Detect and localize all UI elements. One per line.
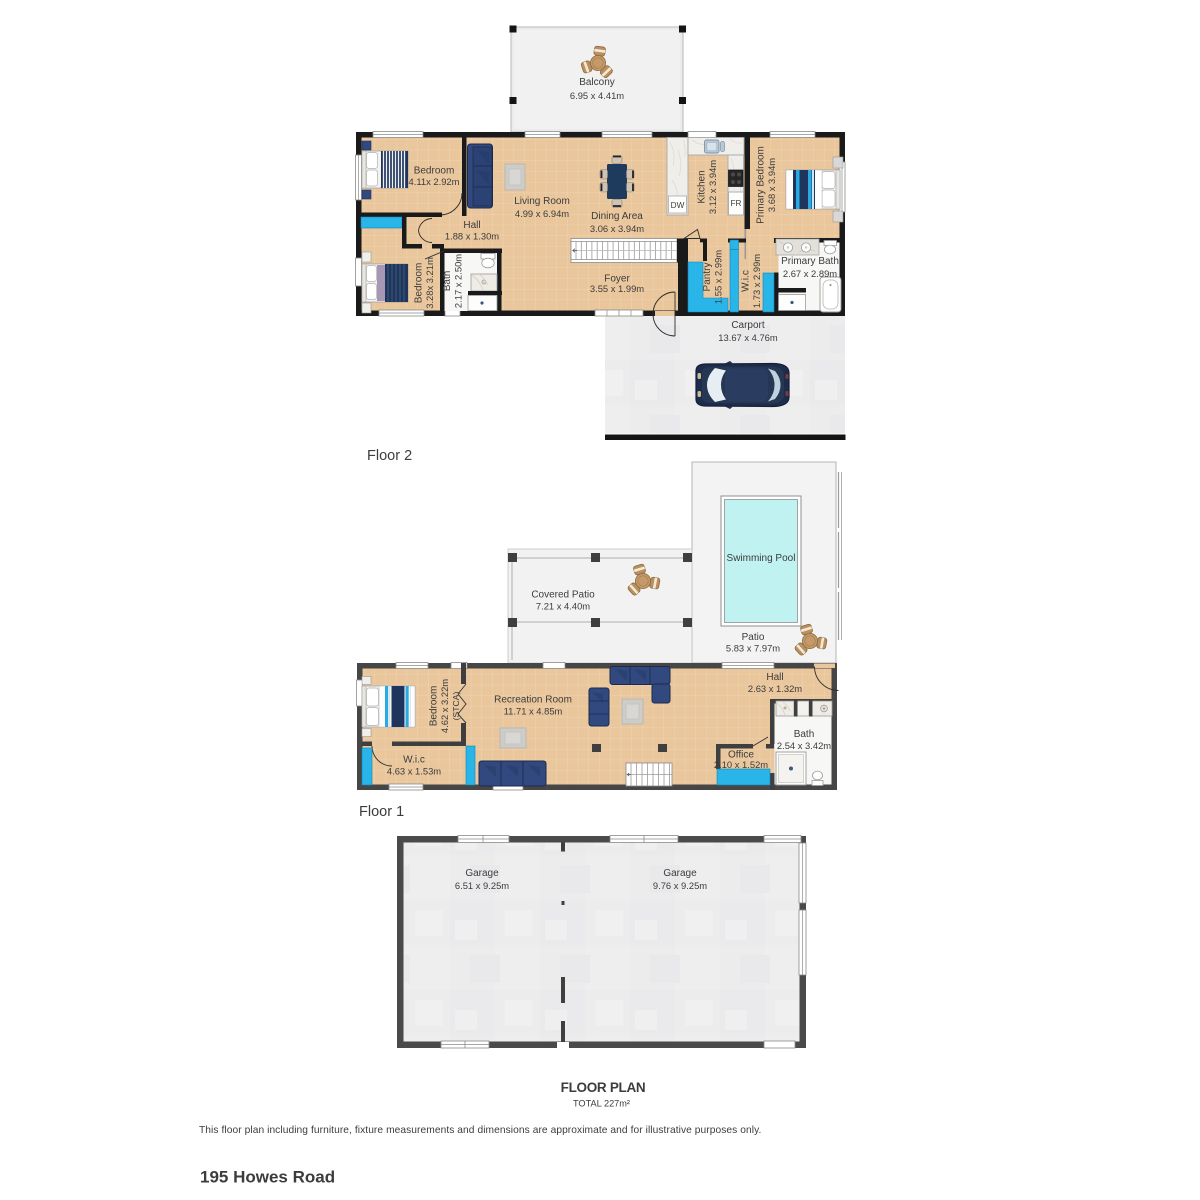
svg-text:Floor 2: Floor 2	[367, 448, 412, 464]
svg-text:Bedroom: Bedroom	[414, 166, 455, 177]
svg-text:3.06 x 3.94m: 3.06 x 3.94m	[590, 223, 644, 234]
svg-text:3.68 x 3.94m: 3.68 x 3.94m	[766, 158, 777, 212]
svg-text:9.76 x 9.25m: 9.76 x 9.25m	[653, 880, 707, 891]
svg-text:Recreation Room: Recreation Room	[494, 695, 572, 706]
svg-text:6.95 x 4.41m: 6.95 x 4.41m	[570, 90, 624, 101]
svg-text:FLOOR PLAN: FLOOR PLAN	[561, 1080, 646, 1095]
svg-text:Carport: Carport	[731, 320, 765, 331]
svg-text:Floor 1: Floor 1	[359, 804, 404, 820]
svg-text:W.i.c: W.i.c	[741, 270, 752, 292]
svg-text:(STCA): (STCA)	[451, 692, 461, 721]
svg-text:Hall: Hall	[463, 220, 480, 231]
svg-text:1.55 x 2.99m: 1.55 x 2.99m	[713, 250, 724, 304]
svg-text:4.62 x 3.22m: 4.62 x 3.22m	[439, 679, 450, 733]
svg-text:Hall: Hall	[766, 672, 783, 683]
svg-text:195 Howes Road: 195 Howes Road	[200, 1168, 335, 1187]
svg-text:Bath: Bath	[442, 271, 453, 292]
svg-text:3.28x 3.21m: 3.28x 3.21m	[424, 257, 435, 309]
svg-text:3.12 x 3.94m: 3.12 x 3.94m	[707, 160, 718, 214]
svg-text:2.10 x 1.52m: 2.10 x 1.52m	[714, 759, 768, 770]
svg-text:6.51 x 9.25m: 6.51 x 9.25m	[455, 880, 509, 891]
svg-text:TOTAL 227m²: TOTAL 227m²	[573, 1099, 630, 1109]
svg-text:13.67 x 4.76m: 13.67 x 4.76m	[718, 332, 778, 343]
svg-text:5.83 x 7.97m: 5.83 x 7.97m	[726, 643, 780, 654]
svg-text:Covered Patio: Covered Patio	[531, 590, 595, 601]
svg-text:FR: FR	[731, 199, 742, 208]
svg-text:Pantry: Pantry	[702, 263, 713, 292]
svg-text:3.55 x 1.99m: 3.55 x 1.99m	[590, 283, 644, 294]
svg-text:Garage: Garage	[663, 868, 697, 879]
svg-text:Kitchen: Kitchen	[697, 170, 708, 203]
svg-text:7.21 x 4.40m: 7.21 x 4.40m	[536, 601, 590, 612]
svg-text:Garage: Garage	[465, 868, 499, 879]
svg-text:2.17 x 2.50m: 2.17 x 2.50m	[453, 254, 464, 308]
svg-text:4.99 x 6.94m: 4.99 x 6.94m	[515, 208, 569, 219]
svg-text:4.11x 2.92m: 4.11x 2.92m	[409, 176, 460, 187]
svg-text:1.88 x 1.30m: 1.88 x 1.30m	[445, 231, 499, 242]
svg-text:Dining Area: Dining Area	[591, 211, 643, 222]
svg-text:Balcony: Balcony	[579, 77, 615, 88]
svg-text:Swimming Pool: Swimming Pool	[727, 553, 796, 564]
svg-text:This floor plan including furn: This floor plan including furniture, fix…	[199, 1125, 761, 1136]
svg-text:Bath: Bath	[794, 729, 815, 740]
svg-text:DW: DW	[671, 201, 685, 210]
svg-text:2.54 x 3.42m: 2.54 x 3.42m	[777, 740, 831, 751]
svg-text:Primary Bedroom: Primary Bedroom	[756, 146, 767, 224]
svg-text:2.67 x 2.89m: 2.67 x 2.89m	[783, 268, 837, 279]
svg-text:W.i.c: W.i.c	[403, 755, 425, 766]
svg-text:Bedroom: Bedroom	[414, 263, 425, 304]
svg-text:1.73 x 2.99m: 1.73 x 2.99m	[751, 254, 762, 308]
svg-text:Living Room: Living Room	[514, 196, 570, 207]
svg-text:Primary Bath: Primary Bath	[781, 256, 839, 267]
svg-text:11.71 x 4.85m: 11.71 x 4.85m	[504, 706, 563, 717]
svg-text:Patio: Patio	[742, 632, 765, 643]
svg-text:Bedroom: Bedroom	[429, 686, 440, 727]
svg-text:2.63 x 1.32m: 2.63 x 1.32m	[748, 683, 802, 694]
svg-text:4.63 x 1.53m: 4.63 x 1.53m	[387, 766, 441, 777]
